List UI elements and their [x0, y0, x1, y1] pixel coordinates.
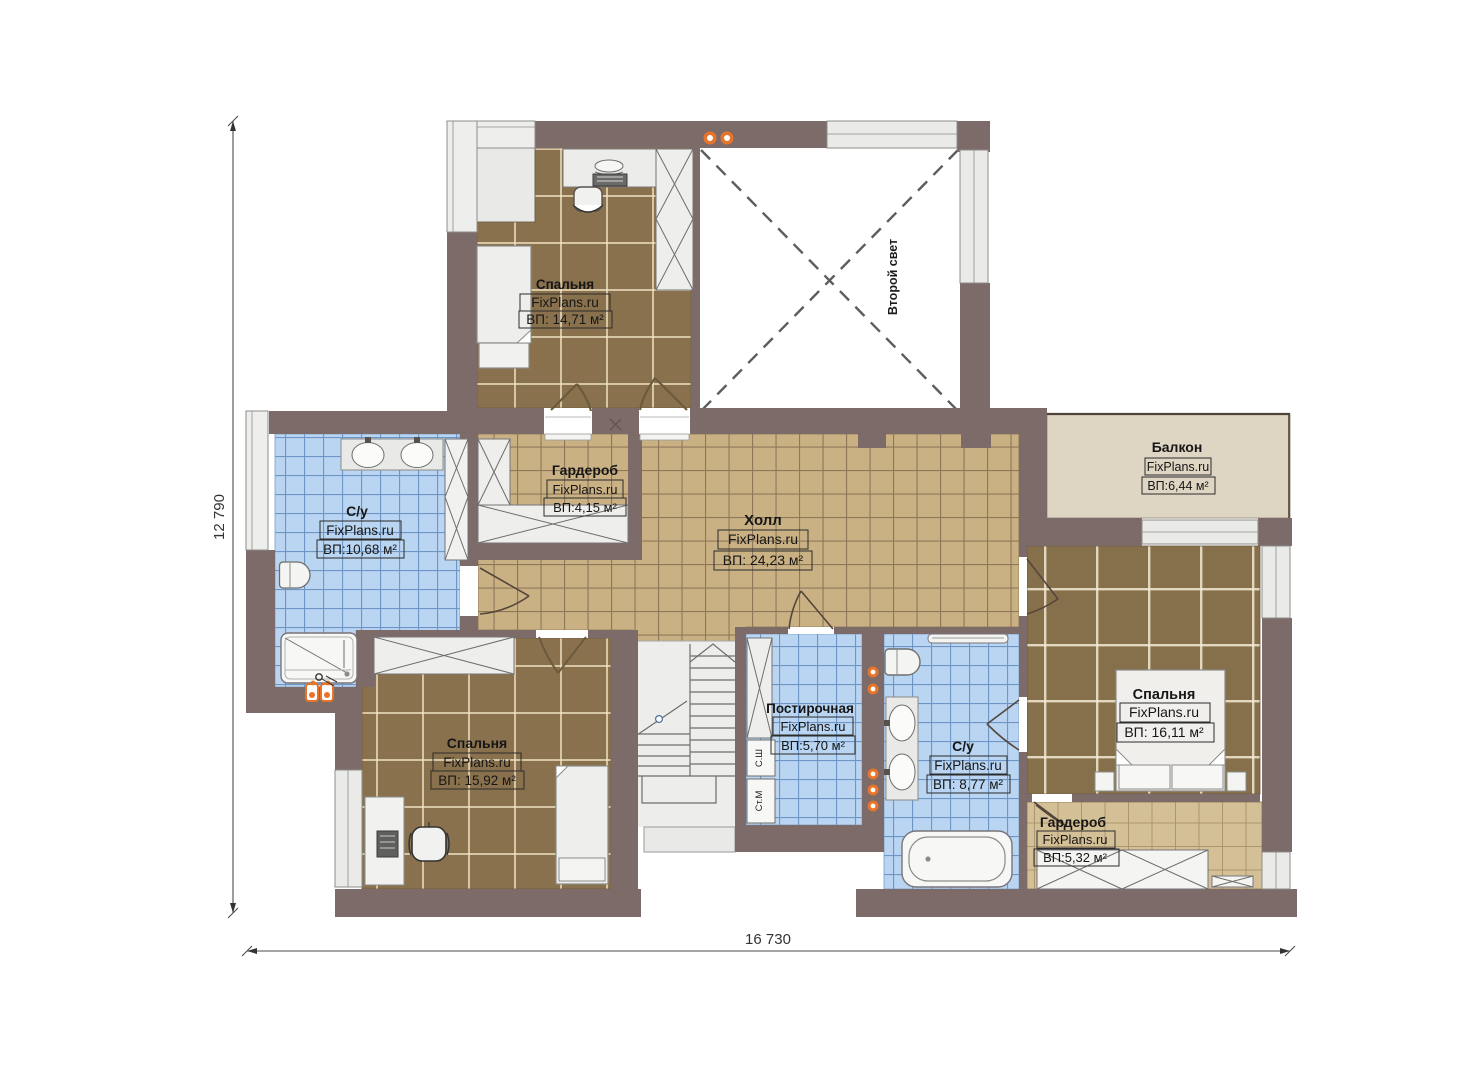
svg-text:FixPlans.ru: FixPlans.ru: [728, 531, 798, 547]
svg-text:FixPlans.ru: FixPlans.ru: [552, 482, 617, 497]
svg-text:Ст.М: Ст.М: [754, 791, 765, 812]
svg-text:FixPlans.ru: FixPlans.ru: [780, 719, 845, 734]
svg-text:Спальня: Спальня: [1133, 687, 1196, 703]
svg-text:Спальня: Спальня: [447, 735, 507, 751]
svg-text:FixPlans.ru: FixPlans.ru: [1147, 460, 1210, 474]
svg-text:FixPlans.ru: FixPlans.ru: [1042, 832, 1107, 847]
svg-text:Второй свет: Второй свет: [886, 239, 900, 315]
svg-text:16 730: 16 730: [745, 931, 791, 948]
svg-text:ВП:5,32 м²: ВП:5,32 м²: [1043, 850, 1107, 865]
svg-text:ВП: 14,71 м²: ВП: 14,71 м²: [526, 312, 604, 327]
svg-text:ВП:6,44 м²: ВП:6,44 м²: [1147, 479, 1208, 493]
svg-text:ВП: 16,11 м²: ВП: 16,11 м²: [1124, 724, 1204, 740]
svg-text:Гардероб: Гардероб: [552, 462, 619, 478]
svg-text:FixPlans.ru: FixPlans.ru: [531, 295, 599, 310]
svg-text:FixPlans.ru: FixPlans.ru: [1129, 704, 1199, 720]
svg-text:ВП:4,15 м²: ВП:4,15 м²: [553, 500, 617, 515]
svg-text:С/у: С/у: [952, 738, 974, 754]
svg-text:FixPlans.ru: FixPlans.ru: [443, 755, 511, 770]
svg-text:ВП:5,70 м²: ВП:5,70 м²: [781, 738, 845, 753]
svg-text:Постирочная: Постирочная: [766, 701, 854, 716]
svg-text:ВП: 24,23 м²: ВП: 24,23 м²: [723, 552, 804, 568]
svg-text:12 790: 12 790: [211, 494, 228, 540]
svg-text:Гардероб: Гардероб: [1040, 814, 1107, 830]
svg-text:Холл: Холл: [744, 512, 782, 529]
svg-text:Балкон: Балкон: [1152, 439, 1203, 455]
svg-text:С.Ш: С.Ш: [754, 749, 765, 767]
svg-text:FixPlans.ru: FixPlans.ru: [326, 523, 394, 538]
svg-text:ВП: 8,77 м²: ВП: 8,77 м²: [933, 777, 1004, 792]
svg-text:Спальня: Спальня: [536, 277, 594, 292]
svg-text:FixPlans.ru: FixPlans.ru: [934, 758, 1002, 773]
svg-text:ВП:10,68 м²: ВП:10,68 м²: [323, 542, 397, 557]
svg-text:С/у: С/у: [346, 503, 368, 519]
svg-text:ВП: 15,92 м²: ВП: 15,92 м²: [438, 773, 516, 788]
